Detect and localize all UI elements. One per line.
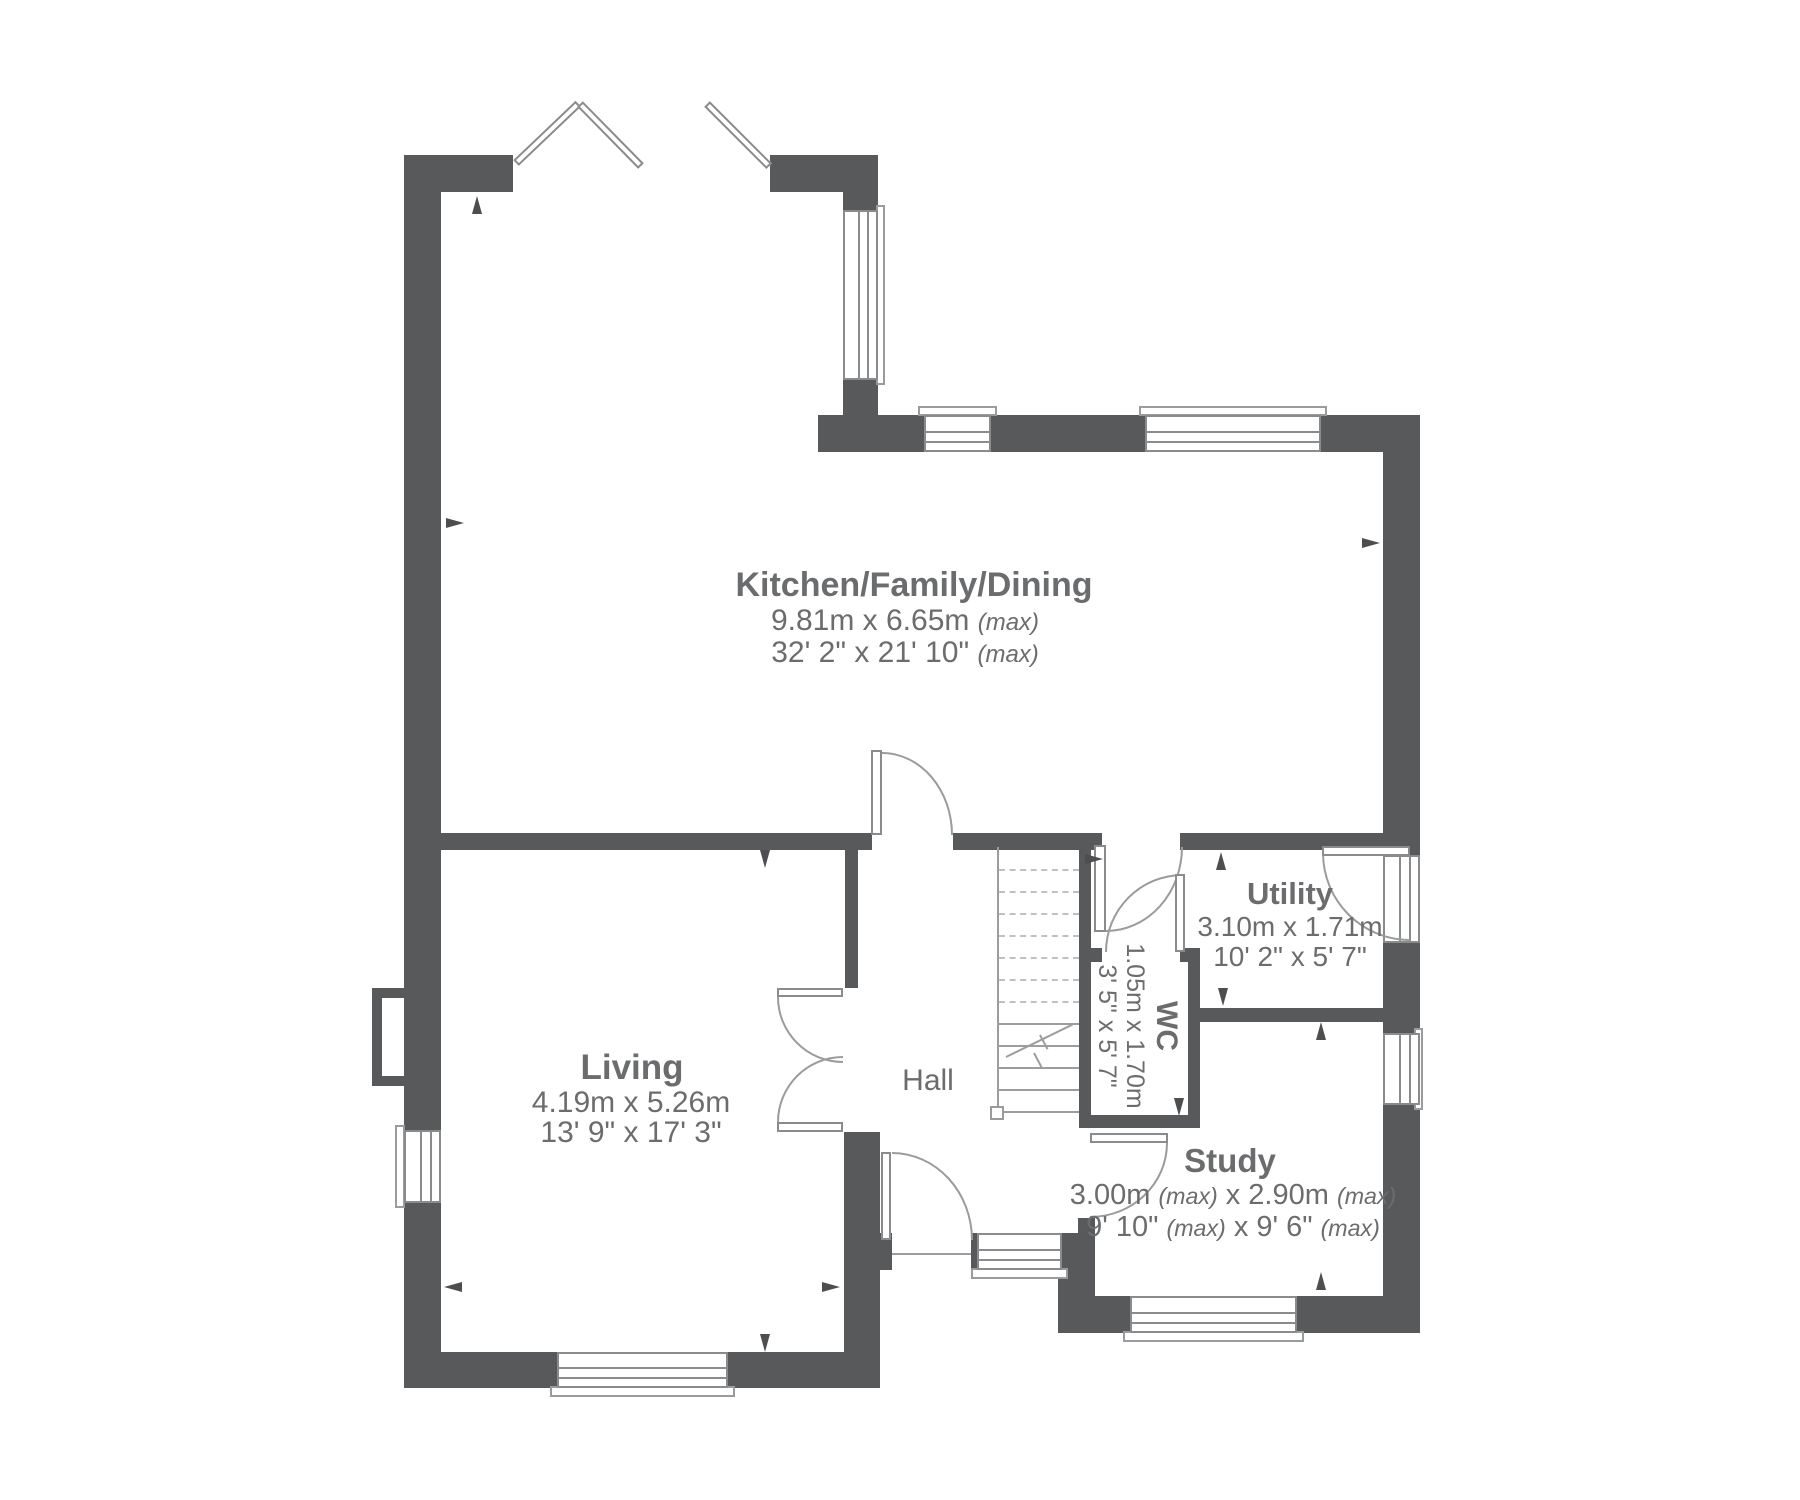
wall-top-right-block (770, 155, 878, 192)
marker-arrow (1316, 1272, 1326, 1290)
entrance-door-swing (892, 1152, 973, 1240)
wall-kitchen-top-a (818, 415, 924, 452)
wall-kitchen-top-c (1321, 415, 1420, 452)
dimension-value: x 2.90m (1226, 1179, 1329, 1211)
dimension-value: x 9' 6" (1234, 1211, 1313, 1243)
bifold-door-leaf (577, 101, 644, 169)
wc-room-title: WC (1149, 943, 1183, 1108)
window-glass (1146, 431, 1320, 443)
living-double-door-lower-leaf (777, 1122, 843, 1132)
wall-study-left-connector (1058, 1233, 1095, 1333)
window-study-right (1383, 1033, 1420, 1105)
marker-arrow (1216, 852, 1226, 870)
window-glass (978, 1249, 1061, 1261)
window-kitchen-top-small (924, 415, 991, 452)
hall-room-title: Hall (902, 1064, 954, 1098)
wall-projection-right-lower (843, 376, 878, 418)
wc-dimensions-metric: 1.05m x 1.70m (1121, 943, 1149, 1108)
window-glass (1131, 1312, 1296, 1324)
dimension-value: 32' 2" x 21' 10" (771, 636, 969, 669)
wall-wc-right (1188, 948, 1200, 1128)
entrance-door-leaf (881, 1152, 891, 1240)
window-living-bottom (557, 1352, 728, 1388)
wall-right-upper (1383, 452, 1420, 855)
wall-living-kitchen-divider (441, 833, 872, 850)
study-door-leaf (1090, 1133, 1168, 1143)
stair-tread (999, 913, 1079, 915)
wall-study-bottom-b (1297, 1296, 1420, 1333)
study-room-title: Study (1184, 1142, 1276, 1180)
marker-arrow (1218, 988, 1228, 1006)
wall-utility-study-divider (1200, 1008, 1383, 1022)
kitchen-dimensions-metric: 9.81m x 6.65m (max) (771, 604, 1039, 638)
dimension-max-note: (max) (1158, 1183, 1217, 1209)
stair-tread (999, 1089, 1079, 1091)
living-double-door-upper-leaf (777, 988, 843, 997)
utility-dimensions-metric: 3.10m x 1.71m (1197, 911, 1382, 943)
marker-arrow (472, 196, 482, 214)
stair-tread (999, 1045, 1079, 1047)
study-dimensions-metric: 3.00m (max) x 2.90m (max) (1070, 1179, 1396, 1212)
stair-tread (999, 1001, 1079, 1003)
wall-living-bottom-a (404, 1352, 557, 1388)
stair-tread (999, 1067, 1079, 1069)
stair-tread (999, 957, 1079, 959)
marker-arrow (446, 518, 464, 528)
dimension-value: 3.00m (1070, 1179, 1151, 1211)
wall-living-hall-upper (845, 850, 858, 988)
wall-living-hall-lower (844, 1132, 880, 1388)
kitchen-hall-door-leaf (871, 750, 882, 835)
window-glass (1399, 1034, 1411, 1104)
wc-dimensions-imperial: 3' 5" x 5' 7" (1093, 943, 1121, 1108)
wall-wc-bottom (1079, 1115, 1200, 1128)
kitchen-hall-door-swing (882, 752, 953, 835)
living-dimensions-metric: 4.19m x 5.26m (532, 1086, 730, 1120)
chimney-breast (372, 988, 404, 1086)
marker-arrow (444, 1282, 462, 1292)
stair-tread (999, 1111, 1079, 1113)
window-glass (925, 431, 990, 443)
utility-external-door-leaf (1322, 846, 1410, 856)
kitchen-room-title: Kitchen/Family/Dining (735, 566, 1092, 605)
window-hall-front (977, 1233, 1062, 1270)
marker-arrow (760, 850, 770, 868)
marker-arrow (822, 1282, 840, 1292)
window-garden-side (843, 210, 878, 380)
dimension-max-note: (max) (978, 609, 1039, 636)
staircase (997, 847, 1079, 1115)
wall-right-middle (1383, 943, 1420, 1033)
living-double-door-lower-swing (777, 1056, 843, 1122)
wall-living-bottom-b (728, 1352, 880, 1388)
wc-label-block: WC 1.05m x 1.70m 3' 5" x 5' 7" (1093, 943, 1183, 1108)
utility-room-title: Utility (1247, 876, 1333, 912)
living-double-door-upper-swing (777, 997, 843, 1063)
window-glass (558, 1367, 727, 1379)
window-living-left (404, 1130, 441, 1203)
stair-tread (999, 979, 1079, 981)
window-kitchen-top-large (1145, 415, 1321, 452)
marker-arrow (1085, 854, 1103, 864)
stair-newel-post (990, 1106, 1004, 1120)
stair-tread (999, 935, 1079, 937)
marker-arrow (1316, 1022, 1326, 1040)
living-room-title: Living (580, 1048, 683, 1088)
wall-kitchen-top-b (991, 415, 1145, 452)
wc-door-leaf (1175, 874, 1185, 952)
dimension-max-note: (max) (1167, 1215, 1226, 1241)
utility-dimensions-imperial: 10' 2" x 5' 7" (1213, 941, 1367, 973)
window-glass (420, 1131, 432, 1202)
dimension-max-note: (max) (1337, 1183, 1396, 1209)
bifold-door-leaf (704, 101, 772, 169)
window-study-bottom (1130, 1296, 1297, 1333)
floorplan: Kitchen/Family/Dining 9.81m x 6.65m (max… (0, 0, 1800, 1500)
wall-top-left (404, 155, 513, 192)
stair-tread (999, 891, 1079, 893)
marker-arrow (760, 1334, 770, 1352)
stair-tread (999, 869, 1079, 871)
entrance-threshold (892, 1253, 971, 1255)
window-glass (858, 211, 869, 379)
stair-rail (997, 847, 999, 1115)
dimension-value: 9.81m x 6.65m (771, 604, 969, 637)
marker-arrow (1362, 538, 1380, 548)
dimension-value: 9' 10" (1086, 1211, 1158, 1243)
wall-stairs-right (1079, 847, 1091, 1128)
study-dimensions-imperial: 9' 10" (max) x 9' 6" (max) (1086, 1211, 1380, 1244)
wall-left-upper (404, 155, 441, 1130)
bifold-door-leaf (513, 101, 581, 166)
dimension-max-note: (max) (977, 641, 1038, 668)
kitchen-dimensions-imperial: 32' 2" x 21' 10" (max) (771, 636, 1039, 670)
living-dimensions-imperial: 13' 9" x 17' 3" (540, 1116, 721, 1150)
dimension-max-note: (max) (1321, 1215, 1380, 1241)
